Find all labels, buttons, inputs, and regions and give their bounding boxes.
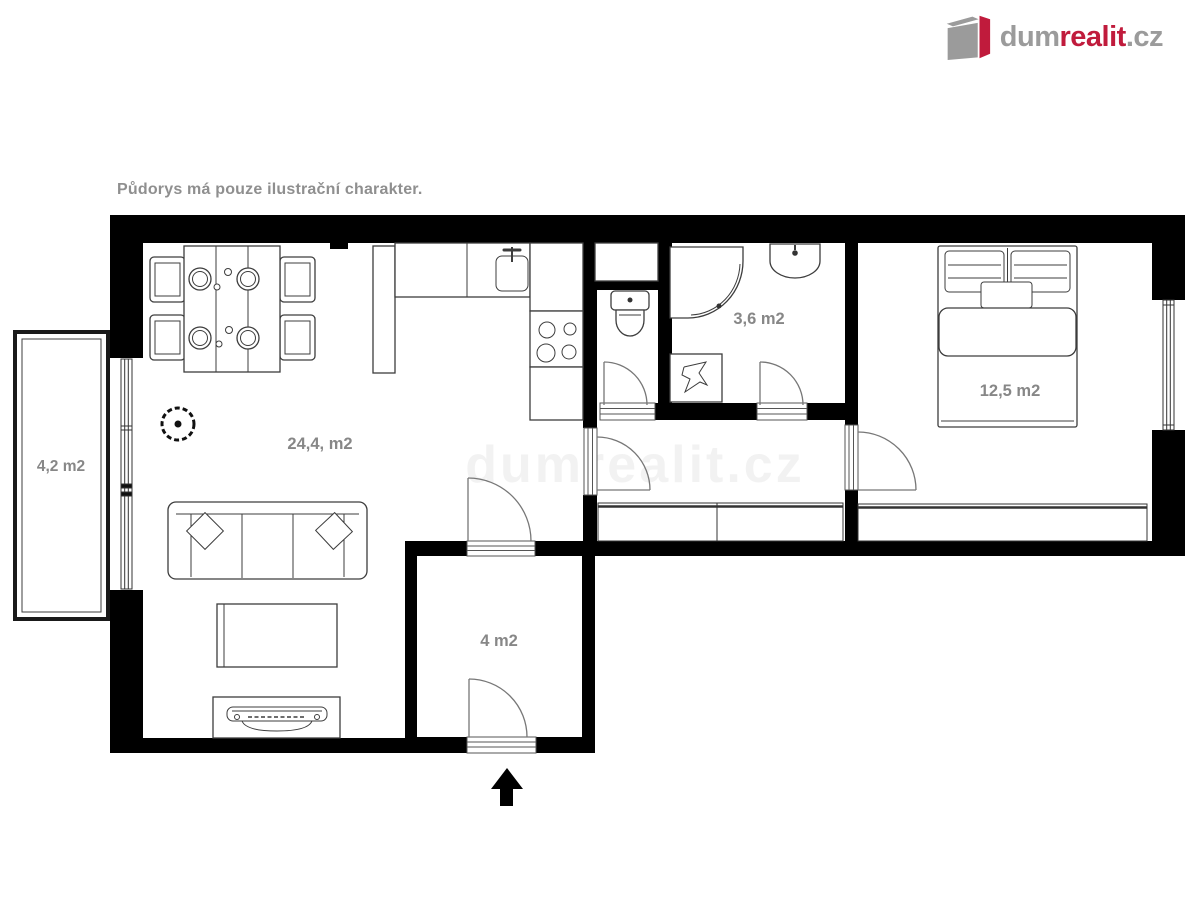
- bed-cushion: [981, 282, 1032, 308]
- hall-living-door-sill: [467, 541, 535, 556]
- kitchen-tall-cabinet: [373, 246, 395, 373]
- bathroom-label: 3,6 m2: [733, 310, 784, 328]
- hall-label: 4 m2: [480, 632, 518, 650]
- watermark-text: dumrealit.cz: [465, 436, 804, 494]
- balcony: [15, 332, 108, 619]
- bathroom-door: [760, 362, 803, 405]
- sofa: [168, 502, 367, 579]
- stove: [530, 311, 583, 367]
- living-room-label: 24,4, m2: [287, 435, 352, 453]
- bedroom-door: [858, 432, 916, 490]
- floorplan-page: Půdorys má pouze ilustrační charakter. d…: [0, 0, 1200, 900]
- toilet: [611, 291, 649, 336]
- wc-shelf: [595, 243, 658, 281]
- washing-machine: [670, 354, 722, 402]
- bedroom-wardrobe: [858, 504, 1147, 541]
- corridor-door-sill: [584, 428, 597, 495]
- kitchen: [373, 243, 583, 420]
- balcony-window: [121, 359, 132, 589]
- shower: [670, 247, 743, 318]
- wardrobes: [598, 503, 1147, 541]
- dining-chair: [150, 315, 185, 360]
- wc-door-sill: [600, 403, 655, 420]
- bedroom-label: 12,5 m2: [980, 382, 1041, 400]
- bathroom-door-sill: [757, 403, 807, 420]
- entrance-door: [469, 679, 527, 737]
- dining-chair: [280, 257, 315, 302]
- wc-door: [604, 362, 647, 405]
- dining-set: [150, 246, 315, 372]
- bed-blanket: [939, 308, 1076, 356]
- tv-bench: [213, 697, 340, 738]
- kitchen-counter: [530, 243, 583, 311]
- dining-chair: [150, 257, 185, 302]
- tv: [227, 707, 327, 721]
- bedroom-window: [1163, 300, 1174, 430]
- entrance-door-sill: [467, 737, 536, 753]
- floorplan-drawing: dumrealit.cz: [0, 0, 1200, 900]
- entrance-arrow: [491, 768, 523, 806]
- bathroom-sink: [770, 244, 820, 278]
- kitchen-counter: [530, 367, 583, 420]
- coffee-table: [217, 604, 337, 667]
- dining-table: [184, 246, 280, 372]
- bedroom-door-sill: [845, 425, 858, 490]
- balcony-label: 4,2 m2: [37, 458, 85, 475]
- corridor-wardrobe: [598, 503, 843, 541]
- plant: [162, 408, 194, 440]
- dining-chair: [280, 315, 315, 360]
